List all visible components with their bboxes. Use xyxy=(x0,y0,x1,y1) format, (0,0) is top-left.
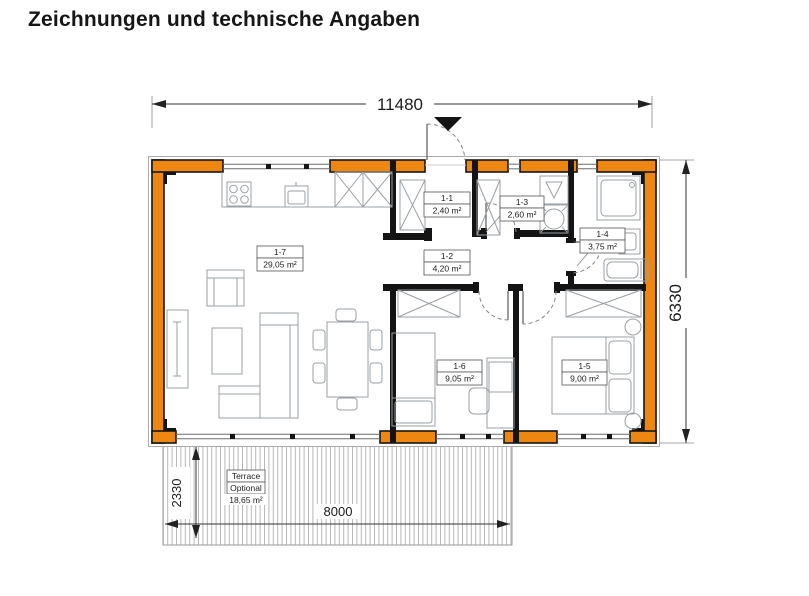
wall-left xyxy=(152,160,164,443)
svg-text:1-4: 1-4 xyxy=(596,229,609,239)
room-label-1-7: 1-7 29,05 m² xyxy=(257,246,303,271)
terrace-depth-value: 2330 xyxy=(169,479,184,508)
svg-text:3,75 m²: 3,75 m² xyxy=(588,242,617,252)
wall-top-1 xyxy=(152,160,223,172)
svg-text:9,05 m²: 9,05 m² xyxy=(445,374,474,384)
svg-text:1-3: 1-3 xyxy=(516,197,529,207)
dimension-overall-width: 11480 xyxy=(152,95,652,128)
wall-bottom-1 xyxy=(152,431,176,443)
svg-text:2,60 m²: 2,60 m² xyxy=(508,210,537,220)
wall-bottom-3 xyxy=(504,431,557,443)
svg-text:Terrace: Terrace xyxy=(232,471,261,481)
svg-text:1-7: 1-7 xyxy=(274,247,287,257)
dimension-depth-value: 6330 xyxy=(666,284,685,322)
dimension-overall-depth: 6330 xyxy=(660,160,694,443)
wall-bottom-2 xyxy=(380,431,436,443)
room-label-1-1: 1-1 2,40 m² xyxy=(424,192,470,217)
wall-top-5 xyxy=(597,160,656,172)
svg-text:18,65 m²: 18,65 m² xyxy=(229,495,263,505)
room-label-1-5: 1-5 9,00 m² xyxy=(562,360,607,385)
room-label-1-2: 1-2 4,20 m² xyxy=(424,250,470,275)
svg-text:1-6: 1-6 xyxy=(453,361,466,371)
wall-right xyxy=(644,160,656,443)
terrace-label: Terrace Optional 18,65 m² xyxy=(224,470,268,505)
svg-text:1-1: 1-1 xyxy=(441,193,454,203)
room-label-1-6: 1-6 9,05 m² xyxy=(437,360,482,385)
building-outline xyxy=(149,157,660,447)
svg-text:2,40 m²: 2,40 m² xyxy=(433,206,462,216)
entrance-door xyxy=(427,117,465,160)
dimension-width-value: 11480 xyxy=(377,95,423,114)
wall-top-2 xyxy=(330,160,425,172)
floor-plan: 11480 6330 2330 8000 1-1 2,40 m² xyxy=(0,0,809,596)
svg-text:29,05 m²: 29,05 m² xyxy=(263,260,297,270)
wall-bottom-4 xyxy=(630,431,656,443)
svg-text:9,00 m²: 9,00 m² xyxy=(570,374,599,384)
terrace-width-value: 8000 xyxy=(324,504,353,519)
svg-text:1-5: 1-5 xyxy=(578,361,591,371)
entrance-marker-icon xyxy=(434,117,462,131)
svg-text:Optional: Optional xyxy=(230,483,262,493)
svg-text:1-2: 1-2 xyxy=(441,251,454,261)
page: Zeichnungen und technische Angaben xyxy=(0,0,809,596)
terrace xyxy=(163,443,512,545)
svg-text:4,20 m²: 4,20 m² xyxy=(433,264,462,274)
